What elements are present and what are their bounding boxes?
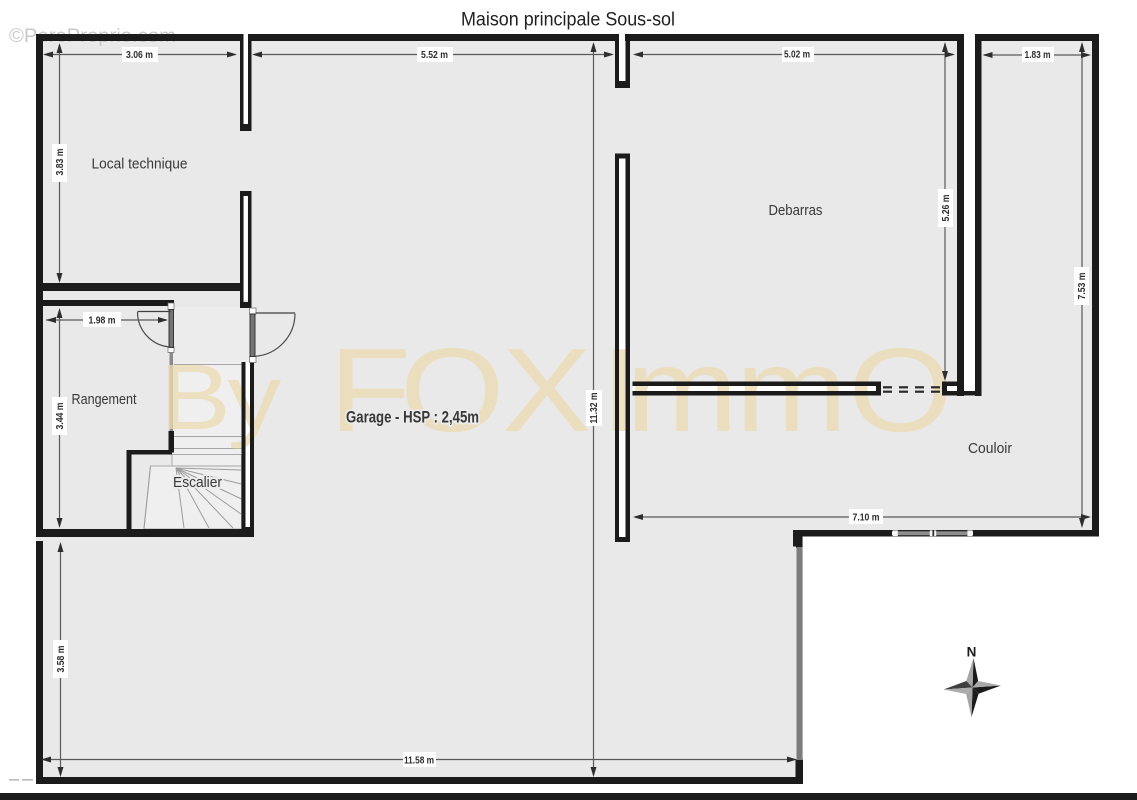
svg-text:1.83 m: 1.83 m xyxy=(1025,50,1051,61)
svg-text:5.52 m: 5.52 m xyxy=(421,50,448,61)
svg-text:3.44 m: 3.44 m xyxy=(55,402,66,429)
svg-text:Maison principale Sous-sol: Maison principale Sous-sol xyxy=(461,10,675,31)
svg-text:3.58 m: 3.58 m xyxy=(56,645,67,672)
svg-text:7.53 m: 7.53 m xyxy=(1077,272,1088,299)
svg-text:3.83 m: 3.83 m xyxy=(55,148,66,175)
svg-text:FOXImmO: FOXImmO xyxy=(329,323,953,456)
svg-text:3.06 m: 3.06 m xyxy=(126,50,153,61)
svg-text:11.58 m: 11.58 m xyxy=(404,756,434,767)
svg-text:Escalier: Escalier xyxy=(173,474,222,491)
svg-text:N: N xyxy=(967,645,977,660)
svg-text:Couloir: Couloir xyxy=(968,441,1012,457)
svg-text:1.98 m: 1.98 m xyxy=(89,316,116,327)
svg-text:Local technique: Local technique xyxy=(92,156,188,173)
svg-text:5.26 m: 5.26 m xyxy=(941,194,952,221)
svg-text:7.10 m: 7.10 m xyxy=(853,513,880,524)
svg-text:5.02 m: 5.02 m xyxy=(784,50,810,61)
svg-text:Debarras: Debarras xyxy=(769,203,823,219)
svg-text:By: By xyxy=(160,345,282,449)
svg-text:Rangement: Rangement xyxy=(72,392,137,408)
svg-text:Garage - HSP : 2,45m: Garage - HSP : 2,45m xyxy=(346,408,479,427)
svg-text:11.32 m: 11.32 m xyxy=(589,392,600,423)
